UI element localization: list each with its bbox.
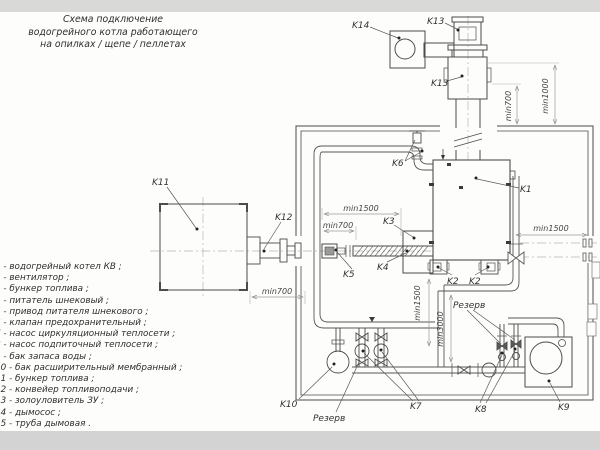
valve-icon: [508, 252, 524, 264]
legend-item: 7 - насос циркуляционный теплосети ;: [0, 329, 182, 340]
dim-min3000: min3000: [436, 311, 445, 346]
expansion-tank-k10: [327, 328, 349, 373]
photo-edge-band-top: [0, 0, 600, 12]
drawing-sheet: Схема подключение водогрейного котла раб…: [0, 0, 600, 450]
dim-min1500: min1500: [413, 285, 422, 320]
legend-item: 4 - питатель шнековый ;: [0, 296, 182, 307]
photo-edge-band-bottom: [0, 431, 600, 450]
label-k5: K5: [343, 270, 355, 280]
dim-min1500: min1500: [343, 204, 378, 213]
centerlines: [150, 16, 599, 299]
flow-arrow: [441, 155, 445, 160]
ash-collector-k13: [448, 57, 487, 99]
chimney-cap: [454, 22, 481, 45]
valve-icon: [511, 340, 521, 348]
circulation-pumps-k7: [355, 328, 388, 367]
network-flanges: [583, 239, 592, 261]
label-k8: K8: [475, 405, 487, 415]
drawing-title: Схема подключение водогрейного котла раб…: [28, 14, 198, 52]
legend-item: 8 - насос подпиточный теплосети ;: [0, 340, 182, 351]
legend-item: 11 - бункер топлива ;: [0, 374, 182, 385]
legend-item: 10 - бак расширительный мембранный ;: [0, 363, 182, 374]
legend-item: 13 - золоуловитель ЗУ ;: [0, 396, 182, 407]
label-k2: K2: [447, 277, 459, 287]
dim-min700: min700: [504, 91, 513, 121]
water-tank-k9: [525, 337, 572, 387]
label-k13: K13: [431, 79, 449, 89]
dimensions: min1500 min700 min700 min1500 min700 min…: [250, 63, 587, 362]
label-k1: K1: [520, 185, 532, 195]
valve-icon: [375, 359, 387, 366]
label-reserve: Резерв: [313, 414, 345, 424]
legend-item: 1 - водогрейный котел КВ ;: [0, 262, 182, 273]
makeup-pumps-k8: [497, 324, 521, 367]
boiler-k1: [429, 149, 515, 260]
legend-item: 14 - дымосос ;: [0, 408, 182, 419]
label-k11: K11: [152, 178, 169, 188]
label-k14: K14: [352, 21, 370, 31]
label-k10: K10: [280, 400, 298, 410]
dim-min700: min700: [262, 287, 292, 296]
valve-icon: [497, 342, 507, 350]
title-line-1: Схема подключение: [28, 14, 198, 27]
header-pump: [452, 363, 496, 377]
label-k4: K4: [377, 263, 389, 273]
dim-min1500: min1500: [533, 224, 568, 233]
label-k7: K7: [410, 402, 422, 412]
label-k13: K13: [427, 17, 445, 27]
chimney-cap-plate: [452, 17, 483, 22]
legend-item: 6 - клапан предохранительный ;: [0, 318, 182, 329]
boiler-outlet-flange: [510, 171, 515, 179]
label-k9: K9: [558, 403, 570, 413]
title-line-2: водогрейного котла работающего: [28, 27, 198, 40]
legend-item: 5 - привод питателя шнекового ;: [0, 307, 182, 318]
label-k3: K3: [383, 217, 395, 227]
safety-valve-k6: [409, 131, 425, 159]
dim-min1000: min1000: [541, 78, 550, 113]
pump-icon: [482, 363, 496, 377]
legend-list: 1 - водогрейный котел КВ ; 2 - вентилято…: [0, 262, 182, 430]
legend-item: 12 - конвейер топливоподачи ;: [0, 385, 182, 396]
title-line-3: на опилках / щепе / пеллетах: [28, 39, 198, 52]
label-k6: K6: [392, 159, 404, 169]
dim-min700: min700: [323, 221, 353, 230]
legend-item: 2 - вентилятор ;: [0, 273, 182, 284]
legend-item: 15 - труба дымовая .: [0, 419, 182, 430]
label-reserve: Резерв: [453, 301, 485, 311]
legend-item: 3 - бункер топлива ;: [0, 284, 182, 295]
fuel-conveyor-k12: [247, 237, 301, 264]
valve-icon: [375, 333, 387, 341]
valve-icon: [356, 333, 368, 341]
legend-item: 9 - бак запаса воды ;: [0, 352, 182, 363]
air-vent-icon: [369, 317, 375, 322]
label-k2: K2: [469, 277, 481, 287]
label-k12: K12: [275, 213, 293, 223]
